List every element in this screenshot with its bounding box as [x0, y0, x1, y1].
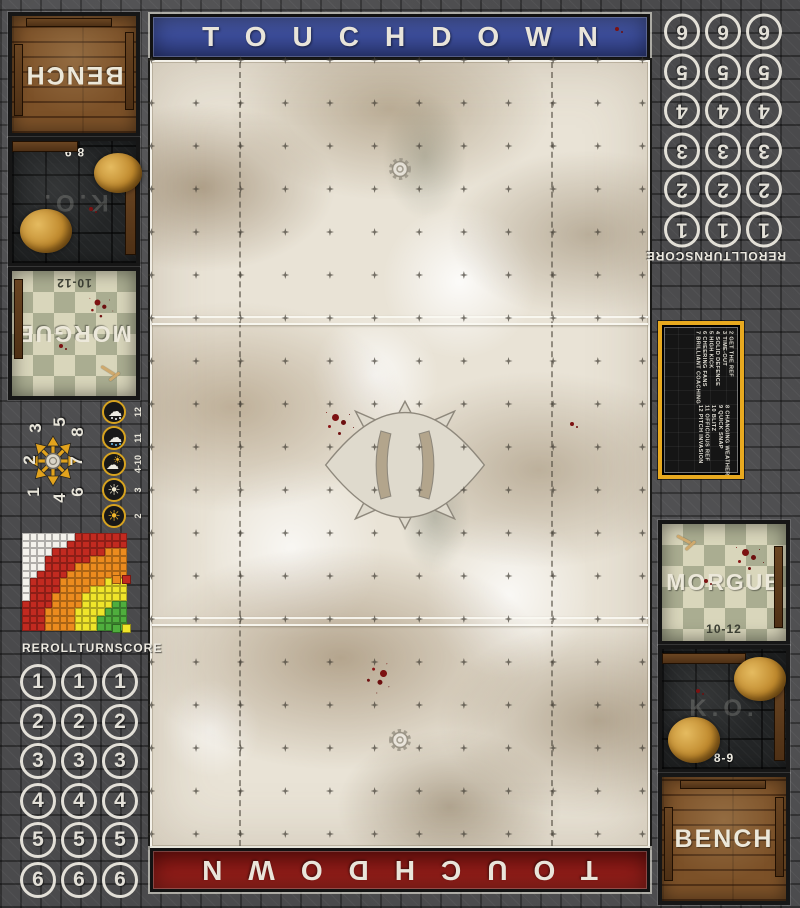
ruler-cell-short-pass [120, 593, 128, 601]
gear-watermark-top-icon [386, 155, 414, 183]
grid-marker [281, 658, 289, 666]
ruler-cell-short-pass [90, 593, 98, 601]
track-circle-1[interactable]: 1 [746, 212, 782, 248]
track-col-score: SCORE [115, 641, 163, 655]
ruler-cell-empty [37, 563, 45, 571]
dugout-right-ko[interactable]: K.O. 8-9 [658, 645, 790, 773]
grid-marker [594, 529, 602, 537]
ruler-cell-long-pass [105, 556, 113, 564]
ruler-cell-long-pass [60, 586, 68, 594]
ruler-cell-quick-pass [112, 616, 120, 624]
track-col-turn: TURN [77, 641, 114, 655]
track-circle-2[interactable]: 2 [20, 704, 56, 740]
track-circle-4[interactable]: 4 [664, 93, 700, 129]
ruler-cell-quick-pass [105, 616, 113, 624]
grid-marker [505, 271, 513, 279]
endzone-banner-top: TOUCHDOWN [150, 14, 650, 60]
grid-marker [594, 185, 602, 193]
ruler-cell-short-pass [90, 616, 98, 624]
ruler-cell-short-pass [97, 586, 105, 594]
track-circle-1[interactable]: 1 [61, 664, 97, 700]
grid-marker [415, 185, 423, 193]
grid-marker [326, 830, 334, 838]
blood-splatter [742, 549, 749, 556]
grid-marker [505, 529, 513, 537]
grid-marker [192, 99, 200, 107]
ruler-cell-long-bomb [37, 608, 45, 616]
weather-range: 4-10 [129, 455, 147, 473]
ruler-cell-long-bomb [75, 541, 83, 549]
ruler-cell-long-bomb [75, 548, 83, 556]
ruler-cell-long-bomb [52, 556, 60, 564]
track-row: 333 [20, 743, 138, 779]
grid-marker [415, 572, 423, 580]
ruler-cell-short-pass [90, 608, 98, 616]
grid-marker [281, 400, 289, 408]
ruler-cell-long-bomb [120, 541, 128, 549]
ruler-cell-short-pass [82, 593, 90, 601]
grid-marker [281, 228, 289, 236]
grid-marker [281, 99, 289, 107]
ruler-cell-long-pass [97, 556, 105, 564]
ruler-cell-empty [37, 533, 45, 541]
grid-marker [192, 142, 200, 150]
track-circle-6[interactable]: 6 [61, 862, 97, 898]
dugout-right-bench[interactable]: BENCH [658, 773, 790, 905]
gear-watermark-bottom-icon [386, 726, 414, 754]
track-circle-4[interactable]: 4 [61, 783, 97, 819]
ruler-cell-short-pass [75, 608, 83, 616]
grid-marker [326, 142, 334, 150]
track-row: 666 [20, 862, 138, 898]
track-heading-bottom: REROLL TURN SCORE [22, 641, 140, 655]
grid-marker [147, 271, 155, 279]
ruler-cell-long-bomb [82, 533, 90, 541]
grid-marker [237, 357, 245, 365]
track-circle-3[interactable]: 3 [664, 133, 700, 169]
grid-marker [415, 744, 423, 752]
grid-marker [192, 400, 200, 408]
ruler-cell-long-pass [82, 586, 90, 594]
track-circle-6[interactable]: 6 [746, 14, 782, 50]
grid-marker [505, 400, 513, 408]
grid-marker [326, 99, 334, 107]
ruler-cell-long-pass [75, 601, 83, 609]
ruler-cell-long-bomb [37, 623, 45, 631]
ruler-cell-long-bomb [52, 563, 60, 571]
track-circle-3[interactable]: 3 [20, 743, 56, 779]
grid-marker [594, 701, 602, 709]
ruler-cell-long-pass [112, 556, 120, 564]
grid-marker [505, 744, 513, 752]
ruler-cell-long-bomb [60, 556, 68, 564]
dugout-left-ko[interactable]: K.O. 8-9 [8, 137, 140, 267]
scatter-number-8: 8 [68, 422, 88, 442]
rain-cloud-icon: ☁ [102, 426, 126, 450]
ruler-cell-long-pass [105, 571, 113, 579]
track-row: 555 [20, 822, 138, 858]
grid-marker [371, 142, 379, 150]
ruler-cell-long-bomb [30, 623, 38, 631]
sun-icon: ☀ [102, 478, 126, 502]
track-circle-1[interactable]: 1 [20, 664, 56, 700]
ruler-cell-short-pass [82, 616, 90, 624]
ruler-cell-long-bomb [45, 593, 53, 601]
grid-marker [594, 787, 602, 795]
kickoff-entry: 7 BRILLIANT COACHING [694, 331, 700, 397]
track-circle-5[interactable]: 5 [746, 54, 782, 90]
ruler-cell-long-pass [52, 608, 60, 616]
grid-marker [237, 443, 245, 451]
grid-marker [281, 271, 289, 279]
morgue-range-right: 10-12 [662, 622, 786, 636]
track-col-score: SCORE [646, 249, 694, 263]
track-circle-5[interactable]: 5 [20, 822, 56, 858]
ruler-cell-long-bomb [82, 556, 90, 564]
ruler-cell-long-pass [67, 593, 75, 601]
grid-marker [460, 271, 468, 279]
ruler-cell-long-bomb [45, 601, 53, 609]
kickoff-entry: 10 BLITZ [710, 405, 716, 479]
weather-row: ☁11 [102, 426, 162, 451]
ruler-cell-quick-pass [120, 616, 128, 624]
grid-marker [638, 744, 646, 752]
grid-marker [594, 400, 602, 408]
grid-marker [281, 787, 289, 795]
grid-marker [326, 658, 334, 666]
ruler-cell-long-pass [82, 578, 90, 586]
ruler-cell-empty [22, 548, 30, 556]
ruler-legend-long [112, 575, 131, 584]
ruler-cell-long-bomb [37, 586, 45, 594]
widezone-line-left [239, 62, 241, 846]
grid-marker [281, 486, 289, 494]
grid-marker [192, 830, 200, 838]
grid-marker [505, 443, 513, 451]
grid-marker [237, 529, 245, 537]
ruler-cell-long-pass [75, 586, 83, 594]
track-circle-2[interactable]: 2 [705, 172, 741, 208]
weather-row: ☁12 [102, 400, 162, 425]
grid-marker [638, 701, 646, 709]
scatter-number-1: 1 [24, 482, 44, 502]
ruler-cell-empty [22, 586, 30, 594]
track-circle-6[interactable]: 6 [664, 14, 700, 50]
ruler-cell-long-bomb [37, 593, 45, 601]
track-circle-2[interactable]: 2 [664, 172, 700, 208]
ruler-cell-long-bomb [37, 616, 45, 624]
grid-marker [237, 185, 245, 193]
track-circle-6[interactable]: 6 [102, 862, 138, 898]
grid-marker [460, 572, 468, 580]
grid-marker [237, 787, 245, 795]
grid-marker [638, 400, 646, 408]
ruler-cell-long-bomb [67, 556, 75, 564]
grid-marker [594, 271, 602, 279]
ruler-cell-empty [22, 571, 30, 579]
grid-marker [460, 830, 468, 838]
morgue-label-left: MORGUE [16, 320, 132, 347]
track-heading-top: REROLL TURN SCORE [662, 249, 786, 263]
track-row: 555 [664, 54, 782, 90]
ruler-cell-long-pass [97, 563, 105, 571]
grid-marker [147, 357, 155, 365]
track-circle-1[interactable]: 1 [102, 664, 138, 700]
grid-marker [192, 357, 200, 365]
ruler-cell-short-pass [105, 601, 113, 609]
kickoff-entry: 2 GET THE REF [727, 331, 733, 397]
grid-marker [147, 658, 155, 666]
ruler-cell-long-bomb [22, 623, 30, 631]
grid-marker [237, 572, 245, 580]
scatter-number-7: 7 [67, 451, 87, 471]
weather-row: ☀☁4-10 [102, 452, 162, 477]
grid-marker [237, 271, 245, 279]
grid-marker [638, 787, 646, 795]
grid-marker [237, 142, 245, 150]
endzone-banner-bottom-label: TOUCHDOWN [176, 854, 598, 886]
ruler-cell-long-pass [67, 571, 75, 579]
ruler-cell-empty [60, 533, 68, 541]
ruler-cell-long-pass [45, 616, 53, 624]
grid-marker [192, 744, 200, 752]
blood-splatter [89, 207, 93, 211]
ruler-cell-short-pass [97, 601, 105, 609]
dugout-left-bench[interactable]: BENCH [8, 12, 140, 137]
grid-marker [371, 744, 379, 752]
hay-bale [668, 717, 720, 763]
ruler-cell-long-bomb [37, 571, 45, 579]
grid-marker [415, 701, 423, 709]
track-circle-2[interactable]: 2 [102, 704, 138, 740]
grid-marker [594, 142, 602, 150]
ruler-cell-long-pass [75, 593, 83, 601]
ruler-cell-long-bomb [45, 571, 53, 579]
grid-marker [638, 99, 646, 107]
dugout-left-morgue[interactable]: MORGUE 10-12 [8, 267, 140, 400]
grid-marker [237, 99, 245, 107]
ruler-cell-long-bomb [90, 541, 98, 549]
grid-marker [371, 271, 379, 279]
grid-marker [371, 830, 379, 838]
track-circle-4[interactable]: 4 [746, 93, 782, 129]
ruler-cell-long-bomb [120, 533, 128, 541]
scatter-number-2: 2 [20, 450, 40, 470]
grid-marker [460, 701, 468, 709]
ruler-cell-long-pass [97, 571, 105, 579]
track-col-turn: TURN [693, 249, 730, 263]
track-row: 333 [664, 133, 782, 169]
grid-marker [460, 357, 468, 365]
grid-marker [638, 228, 646, 236]
weather-range: 11 [129, 429, 147, 447]
track-row: 111 [664, 212, 782, 248]
grid-marker [638, 572, 646, 580]
track-circle-3[interactable]: 3 [705, 133, 741, 169]
ruler-cell-long-bomb [90, 548, 98, 556]
pitch[interactable] [150, 60, 650, 848]
grid-marker [505, 787, 513, 795]
ruler-cell-quick-pass [112, 608, 120, 616]
scatter-number-4: 4 [50, 488, 70, 508]
grid-marker [415, 228, 423, 236]
grid-marker [147, 744, 155, 752]
ruler-cell-long-bomb [30, 616, 38, 624]
weather-table: ☁12☁11☀☁4-10☀3☀2 [102, 400, 162, 532]
track-row: 444 [664, 93, 782, 129]
ruler-cell-short-pass [120, 586, 128, 594]
ruler-cell-long-pass [52, 623, 60, 631]
grid-marker [460, 228, 468, 236]
morgue-range-left: 10-12 [12, 276, 136, 290]
ruler-cell-long-bomb [67, 548, 75, 556]
ruler-cell-long-pass [67, 608, 75, 616]
grid-marker [638, 185, 646, 193]
track-circle-2[interactable]: 2 [61, 704, 97, 740]
ruler-cell-long-bomb [22, 616, 30, 624]
grid-marker [147, 572, 155, 580]
ruler-cell-empty [22, 563, 30, 571]
grid-marker [281, 142, 289, 150]
track-block-bottom-left: 111222333444555666 [20, 664, 138, 898]
ruler-cell-long-pass [90, 563, 98, 571]
grid-marker [326, 744, 334, 752]
dugout-right-morgue[interactable]: MORGUE 10-12 [658, 520, 790, 645]
ruler-cell-long-pass [82, 563, 90, 571]
ruler-cell-empty [52, 533, 60, 541]
grid-marker [460, 185, 468, 193]
endzone-banner-top-label: TOUCHDOWN [202, 21, 624, 53]
ruler-cell-quick-pass [112, 601, 120, 609]
track-row: 222 [664, 172, 782, 208]
grid-marker [415, 142, 423, 150]
grid-marker [237, 486, 245, 494]
track-circle-3[interactable]: 3 [102, 743, 138, 779]
ruler-cell-empty [22, 541, 30, 549]
legend-swatch [112, 624, 121, 633]
track-circle-2[interactable]: 2 [746, 172, 782, 208]
kickoff-entry: 12 PITCH INVASION [697, 405, 703, 479]
ruler-cell-long-bomb [105, 541, 113, 549]
ruler-cell-long-pass [60, 593, 68, 601]
center-emblem-icon [320, 375, 490, 555]
ruler-cell-empty [22, 533, 30, 541]
ruler-cell-long-pass [45, 608, 53, 616]
blood-splatter [95, 300, 101, 306]
grid-marker [638, 357, 646, 365]
track-circle-1[interactable]: 1 [705, 212, 741, 248]
grid-marker [505, 357, 513, 365]
legend-swatch [112, 575, 121, 584]
ruler-cell-short-pass [82, 623, 90, 631]
grid-marker [281, 572, 289, 580]
ruler-cell-long-pass [90, 556, 98, 564]
pitch-third-line-lower [152, 617, 648, 626]
grid-marker [237, 744, 245, 752]
grid-marker [281, 185, 289, 193]
track-circle-4[interactable]: 4 [20, 783, 56, 819]
grid-marker [371, 787, 379, 795]
track-circle-4[interactable]: 4 [102, 783, 138, 819]
grid-marker [147, 701, 155, 709]
ruler-cell-empty [22, 556, 30, 564]
track-col-reroll: REROLL [22, 641, 77, 655]
grid-marker [371, 701, 379, 709]
ruler-cell-quick-pass [97, 623, 105, 631]
track-circle-5[interactable]: 5 [102, 822, 138, 858]
ruler-cell-quick-pass [105, 608, 113, 616]
ruler-cell-empty [37, 541, 45, 549]
track-circle-5[interactable]: 5 [61, 822, 97, 858]
track-circle-5[interactable]: 5 [664, 54, 700, 90]
grid-marker [147, 142, 155, 150]
track-circle-6[interactable]: 6 [20, 862, 56, 898]
track-circle-6[interactable]: 6 [705, 14, 741, 50]
ruler-cell-long-bomb [52, 571, 60, 579]
ruler-cell-short-pass [75, 623, 83, 631]
ruler-cell-long-bomb [45, 578, 53, 586]
legend-swatch [122, 575, 131, 584]
ruler-legend-short [112, 624, 131, 633]
ruler-cell-long-pass [75, 563, 83, 571]
ruler-cell-short-pass [112, 593, 120, 601]
grid-marker [192, 443, 200, 451]
grid-marker [594, 486, 602, 494]
grid-marker [326, 185, 334, 193]
grid-marker [415, 658, 423, 666]
grid-marker [415, 787, 423, 795]
track-circle-4[interactable]: 4 [705, 93, 741, 129]
track-circle-3[interactable]: 3 [746, 133, 782, 169]
ruler-cell-short-pass [90, 586, 98, 594]
track-circle-3[interactable]: 3 [61, 743, 97, 779]
kickoff-entry: 3 TIME-OUT [721, 331, 727, 397]
track-circle-1[interactable]: 1 [664, 212, 700, 248]
weather-range: 2 [129, 507, 147, 525]
ruler-cell-empty [37, 556, 45, 564]
grid-marker [237, 830, 245, 838]
track-circle-5[interactable]: 5 [705, 54, 741, 90]
grid-marker [638, 529, 646, 537]
ruler-cell-long-pass [112, 548, 120, 556]
kickoff-entry: 5 HIGH KICK [708, 331, 714, 397]
ruler-cell-short-pass [75, 616, 83, 624]
ruler-cell-short-pass [82, 608, 90, 616]
ruler-cell-long-bomb [37, 578, 45, 586]
grid-marker [281, 701, 289, 709]
ruler-cell-short-pass [90, 623, 98, 631]
track-row: 222 [20, 704, 138, 740]
ruler-cell-long-bomb [60, 548, 68, 556]
ruler-cell-empty [45, 548, 53, 556]
grid-marker [594, 658, 602, 666]
grid-marker [638, 142, 646, 150]
ruler-cell-long-bomb [75, 556, 83, 564]
ruler-cell-long-bomb [112, 541, 120, 549]
ruler-cell-long-pass [67, 623, 75, 631]
track-col-reroll: REROLL [731, 249, 786, 263]
ruler-cell-long-bomb [67, 541, 75, 549]
ruler-cell-short-pass [82, 601, 90, 609]
grid-marker [281, 744, 289, 752]
grid-marker [505, 185, 513, 193]
ruler-cell-short-pass [105, 586, 113, 594]
ruler-cell-long-pass [60, 608, 68, 616]
morgue-label-right: MORGUE [666, 569, 782, 596]
blood-splatter [59, 344, 63, 348]
ruler-cell-long-bomb [45, 563, 53, 571]
kickoff-entry: 8 CHANGING WEATHER [723, 405, 729, 479]
